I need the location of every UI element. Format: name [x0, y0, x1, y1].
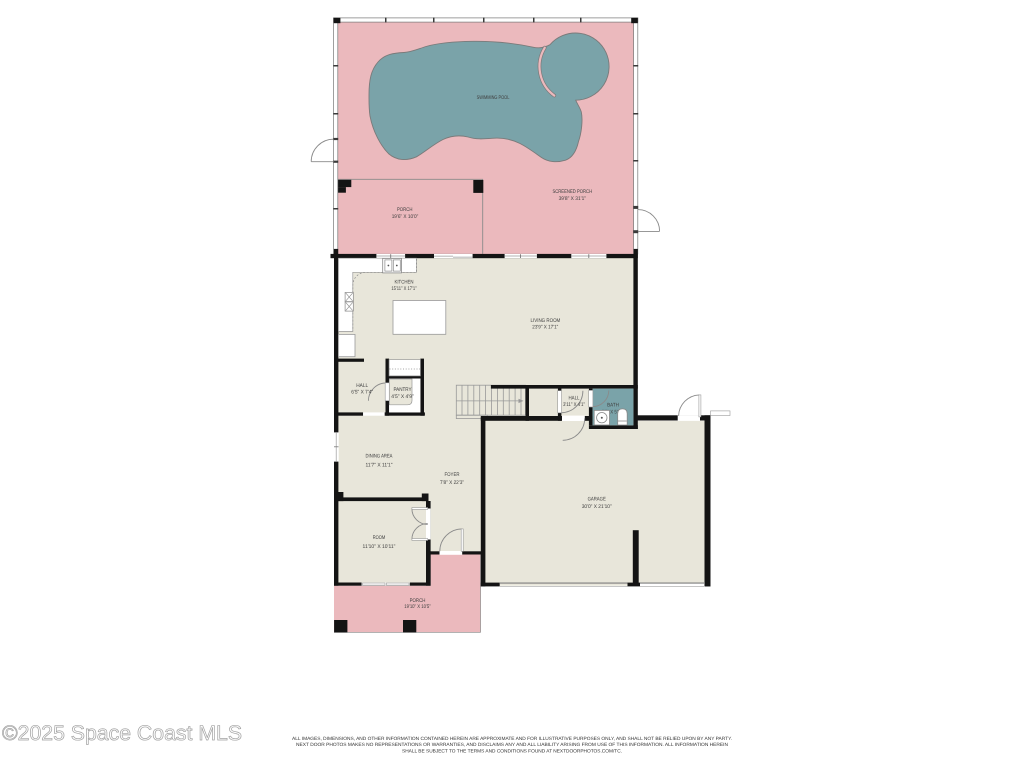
svg-text:DINING AREA: DINING AREA [366, 453, 393, 459]
svg-text:KITCHEN: KITCHEN [394, 279, 413, 285]
svg-text:SCREENED PORCH: SCREENED PORCH [552, 189, 592, 195]
svg-text:11'7" X 11'1": 11'7" X 11'1" [366, 462, 393, 468]
svg-text:SWIMMING POOL: SWIMMING POOL [477, 95, 510, 101]
svg-text:4'5" X 4'9": 4'5" X 4'9" [391, 394, 414, 400]
svg-text:19'10" X 10'5": 19'10" X 10'5" [404, 604, 431, 610]
svg-text:19'6" X 10'0": 19'6" X 10'0" [392, 214, 419, 220]
svg-text:LIVING ROOM: LIVING ROOM [531, 318, 561, 324]
svg-text:PORCH: PORCH [397, 207, 413, 213]
svg-text:©2025 Space Coast MLS: ©2025 Space Coast MLS [2, 722, 242, 745]
svg-text:39'8" X 31'1": 39'8" X 31'1" [559, 196, 587, 202]
svg-text:HALL: HALL [569, 395, 580, 401]
svg-text:GARAGE: GARAGE [588, 496, 607, 502]
svg-text:7'8" X 22'3": 7'8" X 22'3" [440, 480, 464, 486]
svg-text:PANTRY: PANTRY [393, 387, 412, 393]
svg-text:6'5" X 7'4": 6'5" X 7'4" [351, 389, 373, 395]
svg-text:ALL IMAGES, DIMENSIONS, AND OT: ALL IMAGES, DIMENSIONS, AND OTHER INFORM… [292, 736, 732, 741]
svg-text:FOYER: FOYER [445, 472, 460, 478]
svg-text:23'9" X 17'1": 23'9" X 17'1" [532, 324, 558, 330]
svg-text:BATH: BATH [607, 403, 619, 409]
svg-text:HALL: HALL [356, 383, 368, 389]
svg-text:30'0" X 21'10": 30'0" X 21'10" [582, 504, 612, 510]
svg-text:3'11" X 4'1": 3'11" X 4'1" [563, 402, 585, 408]
svg-text:ROOM: ROOM [373, 535, 386, 541]
svg-text:11'10" X 10'11": 11'10" X 10'11" [363, 544, 396, 550]
svg-text:15'11" X 17'1": 15'11" X 17'1" [391, 286, 416, 292]
svg-text:SHALL BE SUBJECT TO THE TERMS: SHALL BE SUBJECT TO THE TERMS AND CONDIT… [402, 748, 622, 753]
svg-text:NEXT DOOR PHOTOS MAKES NO REPR: NEXT DOOR PHOTOS MAKES NO REPRESENTATION… [296, 742, 728, 747]
svg-text:PORCH: PORCH [410, 598, 426, 604]
